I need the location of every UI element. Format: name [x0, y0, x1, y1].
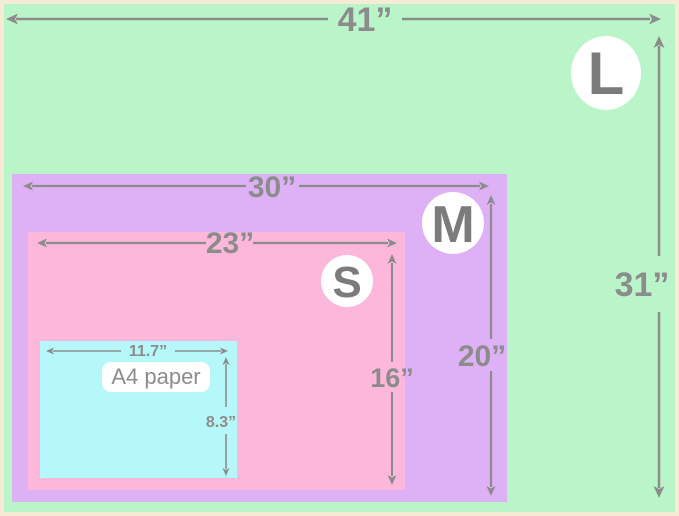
size-l-badge-letter: L: [588, 40, 625, 107]
dim-a4-width-label: 11.7”: [129, 343, 167, 360]
a4-paper-label-text: A4 paper: [111, 364, 200, 389]
size-comparison-diagram: 41” 31” 30” 20” 23” 16”: [0, 0, 679, 516]
dim-m-width-label: 30”: [248, 171, 296, 204]
dim-s-height-label: 16”: [370, 363, 414, 393]
size-s-badge-letter: S: [332, 258, 361, 307]
size-s-badge: S: [321, 255, 373, 307]
dim-m-height-label: 20”: [458, 340, 506, 373]
a4-paper-label: A4 paper: [102, 362, 210, 392]
size-m-badge: M: [422, 192, 484, 254]
size-l-badge: L: [571, 36, 641, 110]
dim-l-height-label: 31”: [615, 266, 670, 304]
dim-l-width-label: 41”: [338, 1, 393, 39]
a4-paper-rect: [40, 341, 237, 478]
size-m-badge-letter: M: [431, 196, 474, 254]
dim-s-width-label: 23”: [206, 227, 254, 260]
dim-a4-height-label: 8.3”: [206, 414, 236, 431]
